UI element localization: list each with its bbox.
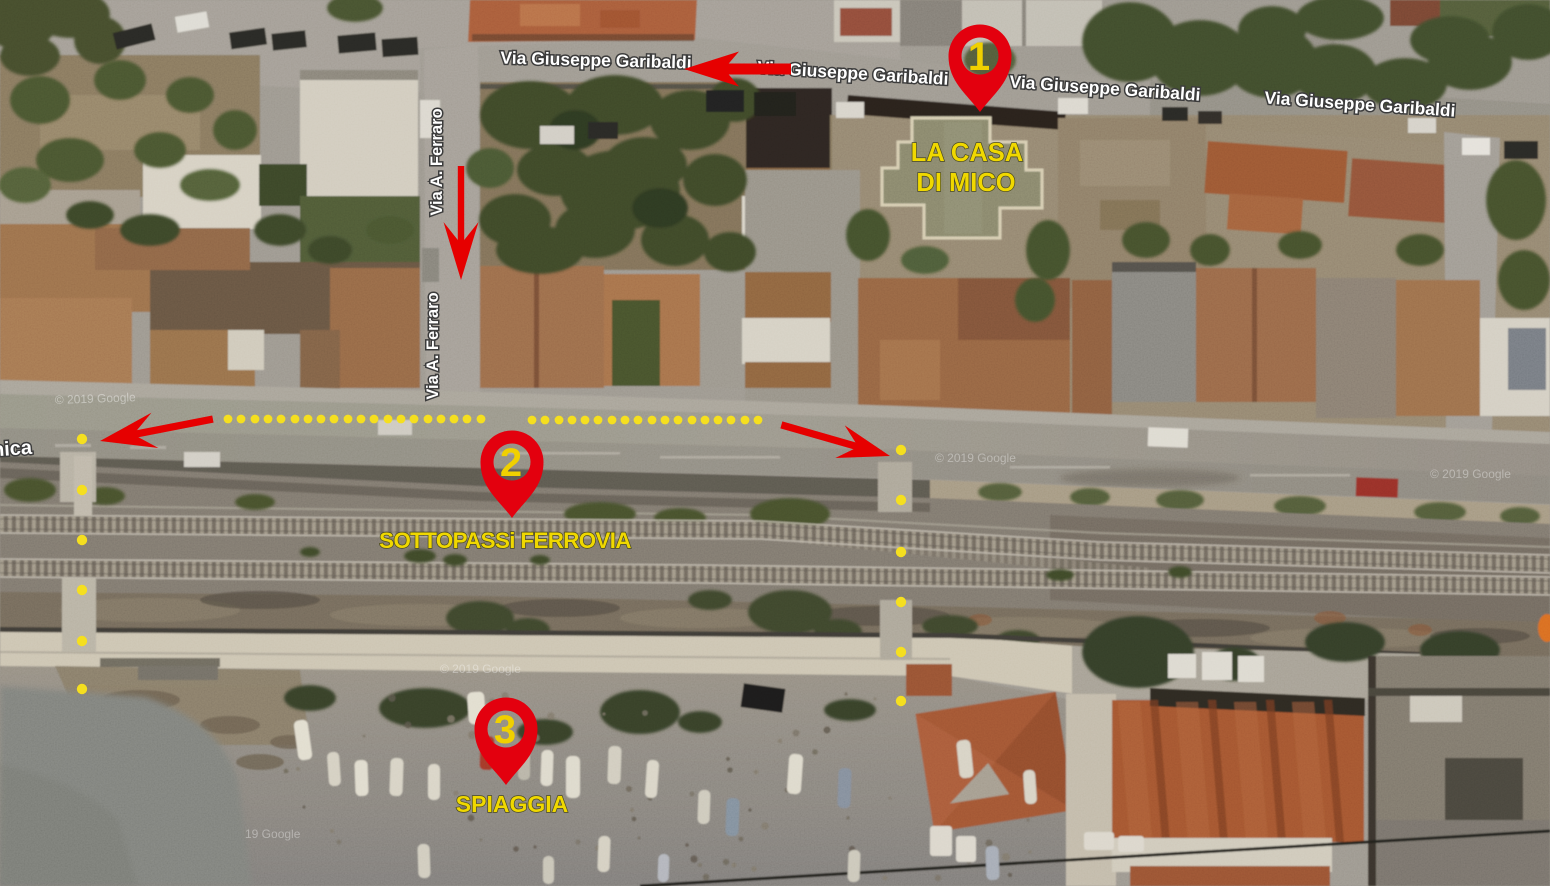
svg-text:SPIAGGIA: SPIAGGIA [456, 791, 568, 817]
svg-text:DI MICO: DI MICO [916, 169, 1015, 197]
svg-text:© 2019 Google: © 2019 Google [440, 662, 521, 676]
svg-text:nica: nica [0, 437, 34, 462]
svg-text:3: 3 [494, 708, 516, 752]
svg-text:© 2019 Google: © 2019 Google [1430, 467, 1511, 481]
svg-text:2: 2 [500, 441, 522, 485]
svg-text:SOTTOPASSi FERROVIA: SOTTOPASSi FERROVIA [379, 528, 631, 553]
svg-text:1: 1 [968, 35, 990, 79]
svg-text:19 Google: 19 Google [245, 827, 301, 841]
svg-text:© 2019 Google: © 2019 Google [935, 451, 1016, 465]
svg-text:Via A. Ferraro: Via A. Ferraro [428, 108, 446, 215]
svg-text:Via A. Ferraro: Via A. Ferraro [424, 292, 442, 399]
svg-text:LA CASA: LA CASA [911, 139, 1023, 167]
svg-text:© 2019 Google: © 2019 Google [55, 390, 137, 407]
